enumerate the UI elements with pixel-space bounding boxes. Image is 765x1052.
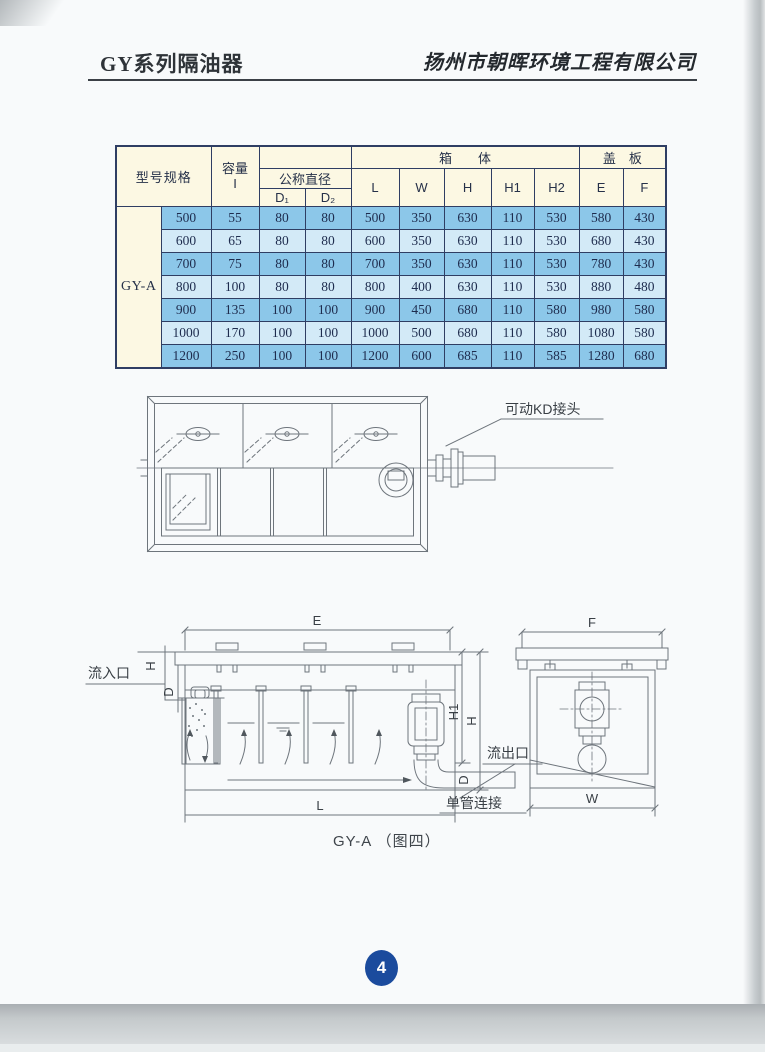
plan-compartments xyxy=(162,463,414,536)
table-cell: 600 xyxy=(351,230,399,253)
dim-f-label: F xyxy=(588,615,596,630)
table-cell: 100 xyxy=(305,322,351,345)
table-cell: 430 xyxy=(623,207,666,230)
table-cell: 100 xyxy=(305,299,351,322)
table-cell: 1080 xyxy=(579,322,623,345)
table-cell: 1000 xyxy=(161,322,211,345)
single-pipe-label: 单管连接 xyxy=(446,795,502,811)
table-cell: 110 xyxy=(491,299,534,322)
table-cell: 630 xyxy=(444,207,491,230)
lid-handle-icon xyxy=(177,428,397,441)
table-cell: 450 xyxy=(399,299,444,322)
table-row: 120025010010012006006851105851280680 xyxy=(116,345,666,369)
table-cell: 350 xyxy=(399,253,444,276)
table-cell: 65 xyxy=(211,230,259,253)
table-row: 100017010010010005006801105801080580 xyxy=(116,322,666,345)
dim-l-label: L xyxy=(316,798,323,813)
col-group-box: 箱 体 xyxy=(351,146,579,169)
table-cell: 580 xyxy=(534,299,579,322)
table-cell: 530 xyxy=(534,253,579,276)
water-level-marks xyxy=(228,723,344,731)
page-number-badge: 4 xyxy=(365,950,398,986)
table-cell: 480 xyxy=(623,276,666,299)
dim-d-outlet-label: D xyxy=(456,775,471,784)
table-cell: 100 xyxy=(211,276,259,299)
table-cell: 680 xyxy=(579,230,623,253)
table-cell: 75 xyxy=(211,253,259,276)
table-cell: 80 xyxy=(259,230,305,253)
table-cell: 630 xyxy=(444,230,491,253)
table-cell: 580 xyxy=(623,299,666,322)
table-cell: 530 xyxy=(534,276,579,299)
col-header-h: H xyxy=(444,169,491,207)
table-cell: 800 xyxy=(161,276,211,299)
col-header-l: L xyxy=(351,169,399,207)
table-cell: 1280 xyxy=(579,345,623,369)
table-cell: 135 xyxy=(211,299,259,322)
table-cell: 580 xyxy=(534,322,579,345)
table-cell: 100 xyxy=(259,299,305,322)
table-cell: 1000 xyxy=(351,322,399,345)
figure-caption: GY-A （图四） xyxy=(333,830,441,851)
table-cell: 350 xyxy=(399,230,444,253)
scan-edge-top-left xyxy=(0,0,90,26)
section-view-drawing: E 流入口 H D xyxy=(78,608,678,848)
table-cell: 900 xyxy=(351,299,399,322)
table-cell: 110 xyxy=(491,276,534,299)
table-cell: 430 xyxy=(623,230,666,253)
end-view-tank xyxy=(530,670,655,788)
header-divider xyxy=(88,79,697,81)
table-cell: 100 xyxy=(259,322,305,345)
col-group-cover: 盖 板 xyxy=(579,146,666,169)
table-cell: 700 xyxy=(351,253,399,276)
table-cell: 110 xyxy=(491,253,534,276)
table-cell: 100 xyxy=(259,345,305,369)
table-cell: 80 xyxy=(305,207,351,230)
table-cell: 580 xyxy=(579,207,623,230)
table-row: 600658080600350630110530680430 xyxy=(116,230,666,253)
table-cell: 630 xyxy=(444,253,491,276)
dim-h-inlet-label: H xyxy=(143,661,158,670)
outlet-label: 流出口 xyxy=(487,745,529,761)
table-cell: 680 xyxy=(444,322,491,345)
table-cell: 780 xyxy=(579,253,623,276)
table-cell: 1200 xyxy=(161,345,211,369)
table-cell: 580 xyxy=(623,322,666,345)
spec-table-body: GY-A500558080500350630110530580430600658… xyxy=(116,207,666,369)
dim-e-label: E xyxy=(313,613,322,628)
dim-d-inlet-label: D xyxy=(161,687,176,696)
cover-plate xyxy=(175,643,462,672)
table-cell: 110 xyxy=(491,322,534,345)
table-cell: 430 xyxy=(623,253,666,276)
table-row: GY-A500558080500350630110530580430 xyxy=(116,207,666,230)
end-view-cover xyxy=(516,648,668,670)
table-cell: 500 xyxy=(351,207,399,230)
table-cell: 585 xyxy=(534,345,579,369)
movable-kd-joint-label: 可动KD接头 xyxy=(505,401,580,417)
company-name: 扬州市朝晖环境工程有限公司 xyxy=(400,46,696,75)
end-view-pump xyxy=(560,672,624,784)
scan-edge-right xyxy=(743,0,765,1052)
col-header-h2: H2 xyxy=(534,169,579,207)
table-cell: 900 xyxy=(161,299,211,322)
col-header-h1: H1 xyxy=(491,169,534,207)
col-header-d2: D₂ xyxy=(305,189,351,207)
dim-f-lines xyxy=(519,629,665,648)
inlet-label: 流入口 xyxy=(88,665,130,681)
col-header-blank xyxy=(259,146,351,169)
table-cell: 680 xyxy=(444,299,491,322)
table-cell: 170 xyxy=(211,322,259,345)
dim-w-label: W xyxy=(586,791,599,806)
table-cell: 110 xyxy=(491,345,534,369)
dim-h-label: H xyxy=(464,716,479,725)
table-cell: 530 xyxy=(534,230,579,253)
table-cell: 55 xyxy=(211,207,259,230)
table-cell: 500 xyxy=(399,322,444,345)
table-row: 8001008080800400630110530880480 xyxy=(116,276,666,299)
table-cell: 500 xyxy=(161,207,211,230)
col-header-capacity: 容量 I xyxy=(211,146,259,207)
dim-e-lines xyxy=(182,627,453,650)
flow-arrows xyxy=(187,729,412,783)
table-cell: 685 xyxy=(444,345,491,369)
kd-joint-leader-line xyxy=(446,419,603,446)
scan-edge-bottom-strip xyxy=(0,1044,765,1052)
spec-table: 型号规格 容量 I 箱 体 盖 板 公称直径 L W H H1 H2 E F D… xyxy=(115,145,667,369)
col-header-w: W xyxy=(399,169,444,207)
model-cell: GY-A xyxy=(116,207,161,369)
table-cell: 980 xyxy=(579,299,623,322)
table-cell: 400 xyxy=(399,276,444,299)
table-cell: 600 xyxy=(161,230,211,253)
table-cell: 1200 xyxy=(351,345,399,369)
table-cell: 80 xyxy=(305,230,351,253)
table-cell: 80 xyxy=(259,276,305,299)
page-number: 4 xyxy=(377,958,386,978)
table-cell: 80 xyxy=(259,253,305,276)
col-header-f: F xyxy=(623,169,666,207)
table-cell: 880 xyxy=(579,276,623,299)
col-header-e: E xyxy=(579,169,623,207)
table-cell: 80 xyxy=(305,276,351,299)
table-cell: 530 xyxy=(534,207,579,230)
table-cell: 80 xyxy=(305,253,351,276)
col-header-model: 型号规格 xyxy=(116,146,211,207)
table-cell: 630 xyxy=(444,276,491,299)
col-header-d1: D₁ xyxy=(259,189,305,207)
table-cell: 680 xyxy=(623,345,666,369)
table-cell: 110 xyxy=(491,207,534,230)
scanned-page: GY系列隔油器 扬州市朝晖环境工程有限公司 型号规格 容量 I 箱 体 盖 板 … xyxy=(0,0,765,1052)
table-cell: 80 xyxy=(259,207,305,230)
page-title: GY系列隔油器 xyxy=(100,48,244,78)
lid-hatch-marks xyxy=(156,438,362,462)
table-cell: 800 xyxy=(351,276,399,299)
table-cell: 110 xyxy=(491,230,534,253)
plan-view-drawing: 可动KD接头 xyxy=(135,388,735,568)
table-row: 900135100100900450680110580980580 xyxy=(116,299,666,322)
table-cell: 100 xyxy=(305,345,351,369)
table-row: 700758080700350630110530780430 xyxy=(116,253,666,276)
table-cell: 250 xyxy=(211,345,259,369)
table-cell: 700 xyxy=(161,253,211,276)
table-cell: 600 xyxy=(399,345,444,369)
col-header-nominal-diameter: 公称直径 xyxy=(259,169,351,189)
table-cell: 350 xyxy=(399,207,444,230)
dim-h1-label: H1 xyxy=(446,704,461,721)
scan-edge-bottom xyxy=(0,1004,765,1044)
